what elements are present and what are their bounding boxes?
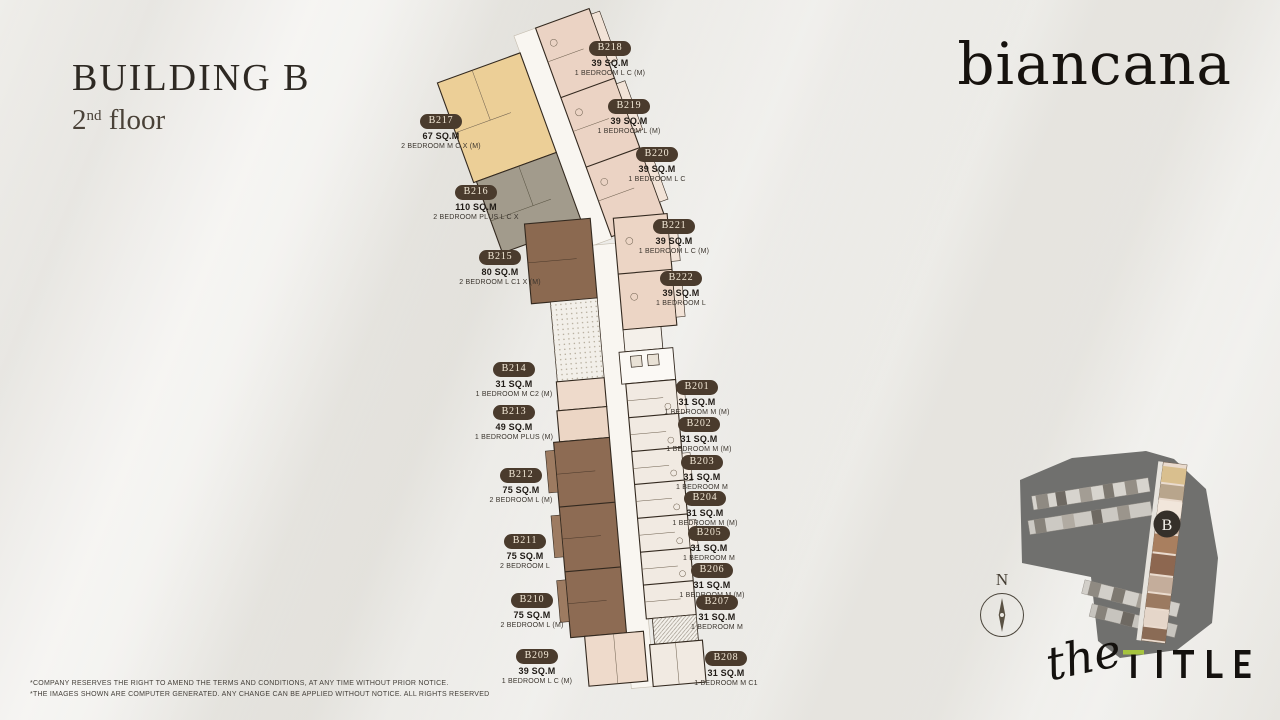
unit-label-b208: B208 31 SQ.M 1 BEDROOM M C1 — [651, 648, 801, 687]
unit-area: 39 SQ.M — [535, 59, 685, 68]
building-title: BUILDING B — [72, 56, 310, 100]
logo-green-accent — [1123, 650, 1144, 655]
unit-id-badge[interactable]: B209 — [516, 649, 559, 664]
unit-id-badge[interactable]: B218 — [589, 41, 632, 56]
unit-label-b213: B213 49 SQ.M 1 BEDROOM PLUS (M) — [439, 402, 589, 441]
unit-area: 31 SQ.M — [642, 613, 792, 622]
unit-type: 1 BEDROOM PLUS (M) — [439, 434, 589, 441]
unit-type: 2 BEDROOM L C1 X (M) — [425, 279, 575, 286]
unit-label-b215: B215 80 SQ.M 2 BEDROOM L C1 X (M) — [425, 247, 575, 286]
unit-label-b221: B221 39 SQ.M 1 BEDROOM L C (M) — [599, 216, 749, 255]
unit-area: 49 SQ.M — [439, 423, 589, 432]
floor-subtitle: 2nd floor — [72, 104, 310, 137]
developer-logo-the-title: the TITLE — [1046, 636, 1257, 680]
unit-label-b204: B204 31 SQ.M 1 BEDROOM M (M) — [630, 488, 780, 527]
unit-label-b212: B212 75 SQ.M 2 BEDROOM L (M) — [446, 465, 596, 504]
unit-area: 80 SQ.M — [425, 268, 575, 277]
unit-area: 39 SQ.M — [606, 289, 756, 298]
unit-label-b218: B218 39 SQ.M 1 BEDROOM L C (M) — [535, 38, 685, 77]
unit-id-badge[interactable]: B208 — [705, 651, 748, 666]
unit-type: 2 BEDROOM L (M) — [457, 622, 607, 629]
building-b-marker-label: B — [1162, 517, 1173, 534]
logo-main-text: TITLE — [1046, 679, 1047, 680]
unit-area: 31 SQ.M — [439, 380, 589, 389]
unit-type: 2 BEDROOM L — [450, 563, 600, 570]
disclaimer: *COMPANY RESERVES THE RIGHT TO AMEND THE… — [30, 678, 489, 700]
site-map-outline — [1020, 451, 1218, 658]
unit-type: 1 BEDROOM L C (M) — [535, 70, 685, 77]
unit-type: 1 BEDROOM L C (M) — [599, 248, 749, 255]
unit-id-badge[interactable]: B212 — [500, 468, 543, 483]
unit-label-b211: B211 75 SQ.M 2 BEDROOM L — [450, 531, 600, 570]
unit-id-badge[interactable]: B217 — [420, 114, 463, 129]
unit-id-badge[interactable]: B210 — [511, 593, 554, 608]
unit-label-b205: B205 31 SQ.M 1 BEDROOM M — [634, 523, 784, 562]
unit-id-badge[interactable]: B213 — [493, 405, 536, 420]
unit-area: 75 SQ.M — [450, 552, 600, 561]
unit-area: 75 SQ.M — [446, 486, 596, 495]
unit-id-badge[interactable]: B216 — [455, 185, 498, 200]
unit-label-b222: B222 39 SQ.M 1 BEDROOM L — [606, 268, 756, 307]
unit-type: 1 BEDROOM M C2 (M) — [439, 391, 589, 398]
unit-type: 1 BEDROOM M C1 — [651, 680, 801, 687]
unit-label-b210: B210 75 SQ.M 2 BEDROOM L (M) — [457, 590, 607, 629]
unit-id-badge[interactable]: B206 — [691, 563, 734, 578]
unit-id-badge[interactable]: B201 — [676, 380, 719, 395]
unit-area: 31 SQ.M — [630, 509, 780, 518]
unit-area: 75 SQ.M — [457, 611, 607, 620]
unit-area: 110 SQ.M — [401, 203, 551, 212]
page-title: BUILDING B 2nd floor — [72, 56, 310, 137]
unit-label-b207: B207 31 SQ.M 1 BEDROOM M — [642, 592, 792, 631]
unit-id-badge[interactable]: B219 — [608, 99, 651, 114]
unit-id-badge[interactable]: B211 — [504, 534, 547, 549]
unit-label-b219: B219 39 SQ.M 1 BEDROOM L (M) — [554, 96, 704, 135]
unit-id-badge[interactable]: B204 — [684, 491, 727, 506]
unit-id-badge[interactable]: B207 — [696, 595, 739, 610]
unit-label-b214: B214 31 SQ.M 1 BEDROOM M C2 (M) — [439, 359, 589, 398]
brand-logo-biancana: biancana — [957, 30, 1232, 98]
compass-north-label: N — [978, 570, 1026, 590]
unit-type: 2 BEDROOM M C X (M) — [366, 143, 516, 150]
unit-type: 1 BEDROOM L — [606, 300, 756, 307]
unit-id-badge[interactable]: B202 — [678, 417, 721, 432]
unit-area: 39 SQ.M — [582, 165, 732, 174]
logo-title-letters — [1123, 650, 1257, 680]
unit-area: 31 SQ.M — [651, 669, 801, 678]
compass-ring — [980, 593, 1024, 637]
unit-area: 31 SQ.M — [637, 581, 787, 590]
unit-id-badge[interactable]: B203 — [681, 455, 724, 470]
logo-script-the: the — [1042, 629, 1125, 687]
compass: N — [978, 570, 1026, 637]
unit-type: 1 BEDROOM M — [642, 624, 792, 631]
unit-label-b201: B201 31 SQ.M 1 BEDROOM M (M) — [622, 377, 772, 416]
unit-area: 31 SQ.M — [634, 544, 784, 553]
unit-id-badge[interactable]: B215 — [479, 250, 522, 265]
disclaimer-line-1: *COMPANY RESERVES THE RIGHT TO AMEND THE… — [30, 678, 489, 689]
unit-id-badge[interactable]: B205 — [688, 526, 731, 541]
unit-type: 1 BEDROOM L (M) — [554, 128, 704, 135]
compass-hub — [1000, 613, 1004, 617]
unit-area: 67 SQ.M — [366, 132, 516, 141]
unit-label-b202: B202 31 SQ.M 1 BEDROOM M (M) — [624, 414, 774, 453]
unit-type: 1 BEDROOM L C — [582, 176, 732, 183]
unit-area: 31 SQ.M — [627, 473, 777, 482]
unit-id-badge[interactable]: B221 — [653, 219, 696, 234]
unit-id-badge[interactable]: B220 — [636, 147, 679, 162]
unit-area: 39 SQ.M — [554, 117, 704, 126]
unit-area: 31 SQ.M — [622, 398, 772, 407]
unit-id-badge[interactable]: B222 — [660, 271, 703, 286]
unit-area: 31 SQ.M — [624, 435, 774, 444]
unit-area: 39 SQ.M — [462, 667, 612, 676]
unit-label-b217: B217 67 SQ.M 2 BEDROOM M C X (M) — [366, 111, 516, 150]
unit-label-b220: B220 39 SQ.M 1 BEDROOM L C — [582, 144, 732, 183]
unit-label-b203: B203 31 SQ.M 1 BEDROOM M — [627, 452, 777, 491]
unit-type: 2 BEDROOM PLUS L C X — [401, 214, 551, 221]
unit-label-b216: B216 110 SQ.M 2 BEDROOM PLUS L C X — [401, 182, 551, 221]
disclaimer-line-2: *THE IMAGES SHOWN ARE COMPUTER GENERATED… — [30, 689, 489, 700]
unit-area: 39 SQ.M — [599, 237, 749, 246]
unit-type: 2 BEDROOM L (M) — [446, 497, 596, 504]
unit-id-badge[interactable]: B214 — [493, 362, 536, 377]
